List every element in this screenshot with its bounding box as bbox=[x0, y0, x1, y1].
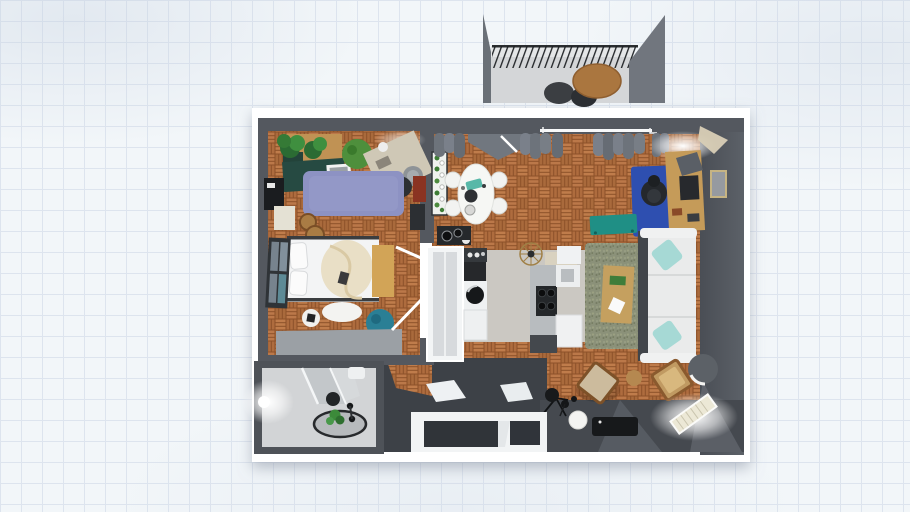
stove[interactable] bbox=[536, 286, 557, 316]
coffee-table[interactable] bbox=[601, 265, 635, 324]
plant-shelf[interactable] bbox=[432, 152, 447, 215]
floor-mat[interactable] bbox=[276, 329, 402, 355]
round-white-rug[interactable] bbox=[322, 302, 362, 322]
ceiling-light[interactable] bbox=[520, 243, 542, 265]
bean-bag-dimple bbox=[371, 314, 381, 324]
window-strip bbox=[540, 129, 652, 132]
dishwasher[interactable] bbox=[556, 315, 582, 347]
black-stool[interactable] bbox=[326, 392, 340, 406]
black-cabinet[interactable] bbox=[464, 262, 486, 281]
dark-bench[interactable] bbox=[530, 335, 557, 353]
floor-plan-render bbox=[0, 0, 910, 512]
cream-cabinet[interactable] bbox=[274, 206, 295, 230]
plate bbox=[465, 205, 475, 215]
outdoor-table[interactable] bbox=[573, 64, 621, 98]
shrub-shade bbox=[347, 145, 357, 155]
tv-stand[interactable] bbox=[264, 178, 284, 210]
tv-detail bbox=[267, 183, 275, 188]
sink[interactable] bbox=[556, 265, 580, 287]
desk-ball-lamp[interactable] bbox=[378, 142, 388, 152]
side-unit[interactable] bbox=[410, 204, 425, 230]
side-stool[interactable] bbox=[626, 370, 642, 386]
wall-picture[interactable] bbox=[711, 171, 726, 197]
double-bed[interactable] bbox=[287, 236, 379, 302]
room-balcony[interactable] bbox=[483, 14, 665, 107]
shag-rug-pile bbox=[309, 176, 398, 211]
floor-plan-canvas[interactable] bbox=[0, 0, 910, 512]
fridge[interactable] bbox=[427, 247, 463, 361]
wall-cabinet[interactable] bbox=[557, 246, 581, 264]
room-bathroom[interactable] bbox=[242, 361, 384, 454]
balcony-wall-left bbox=[483, 14, 491, 103]
coffee-station[interactable] bbox=[464, 248, 487, 262]
pillow-2 bbox=[289, 270, 308, 295]
sofa-arm-bottom bbox=[640, 353, 697, 363]
oval-table[interactable] bbox=[458, 164, 494, 224]
railing[interactable] bbox=[492, 46, 638, 68]
base-cabinet[interactable] bbox=[464, 310, 487, 340]
balcony-wall-right bbox=[629, 15, 665, 103]
washing-machine[interactable] bbox=[464, 281, 487, 310]
bottom-window-glass-2 bbox=[510, 421, 540, 445]
white-sphere-lamp[interactable] bbox=[569, 411, 587, 429]
cooktop-with-pots[interactable] bbox=[437, 226, 471, 245]
bottom-window-glass-1 bbox=[424, 421, 498, 447]
tv-console[interactable] bbox=[592, 417, 638, 436]
monitor[interactable] bbox=[679, 175, 699, 200]
teal-bench[interactable] bbox=[590, 214, 638, 235]
toilet[interactable] bbox=[348, 367, 365, 379]
gray-sphere-lamp[interactable] bbox=[688, 354, 718, 384]
red-cushion[interactable] bbox=[413, 176, 426, 202]
books bbox=[609, 276, 625, 286]
sofa[interactable] bbox=[638, 228, 697, 363]
outdoor-chair-left[interactable] bbox=[544, 82, 574, 104]
wall-light[interactable] bbox=[258, 396, 270, 408]
tray[interactable] bbox=[302, 309, 320, 327]
bedroom-window[interactable] bbox=[265, 237, 291, 308]
sofa-arm-top bbox=[640, 228, 697, 238]
pillow-1 bbox=[289, 242, 308, 269]
bedside-bench[interactable] bbox=[372, 245, 394, 297]
wall-bedroom-top bbox=[258, 118, 432, 131]
wall-left bbox=[258, 118, 268, 365]
bowl bbox=[465, 190, 478, 203]
